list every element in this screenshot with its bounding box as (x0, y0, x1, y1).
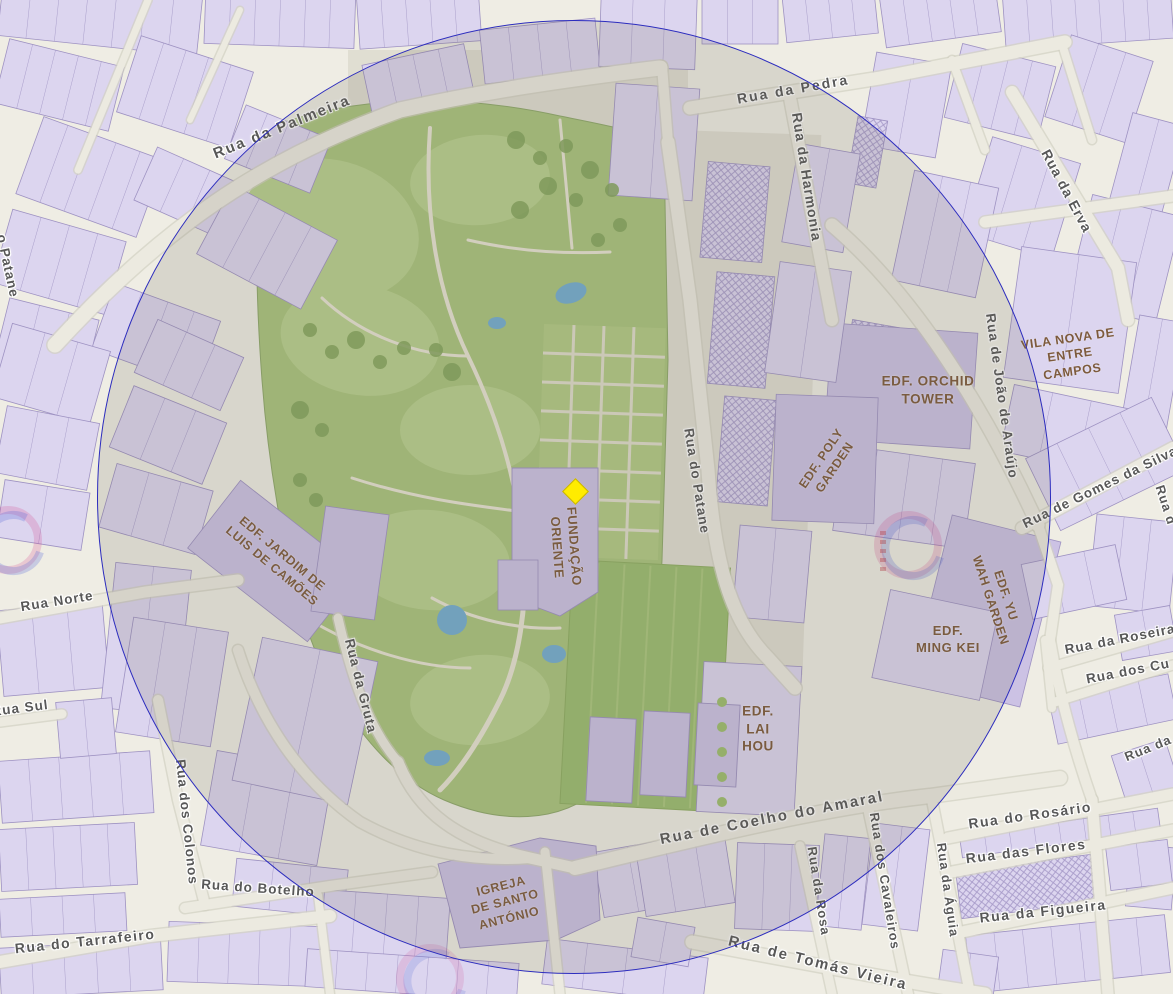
map-canvas[interactable]: Rua da PalmeiraRua da PedraRua da Harmon… (0, 0, 1173, 994)
basemap-graphics (0, 0, 1173, 994)
